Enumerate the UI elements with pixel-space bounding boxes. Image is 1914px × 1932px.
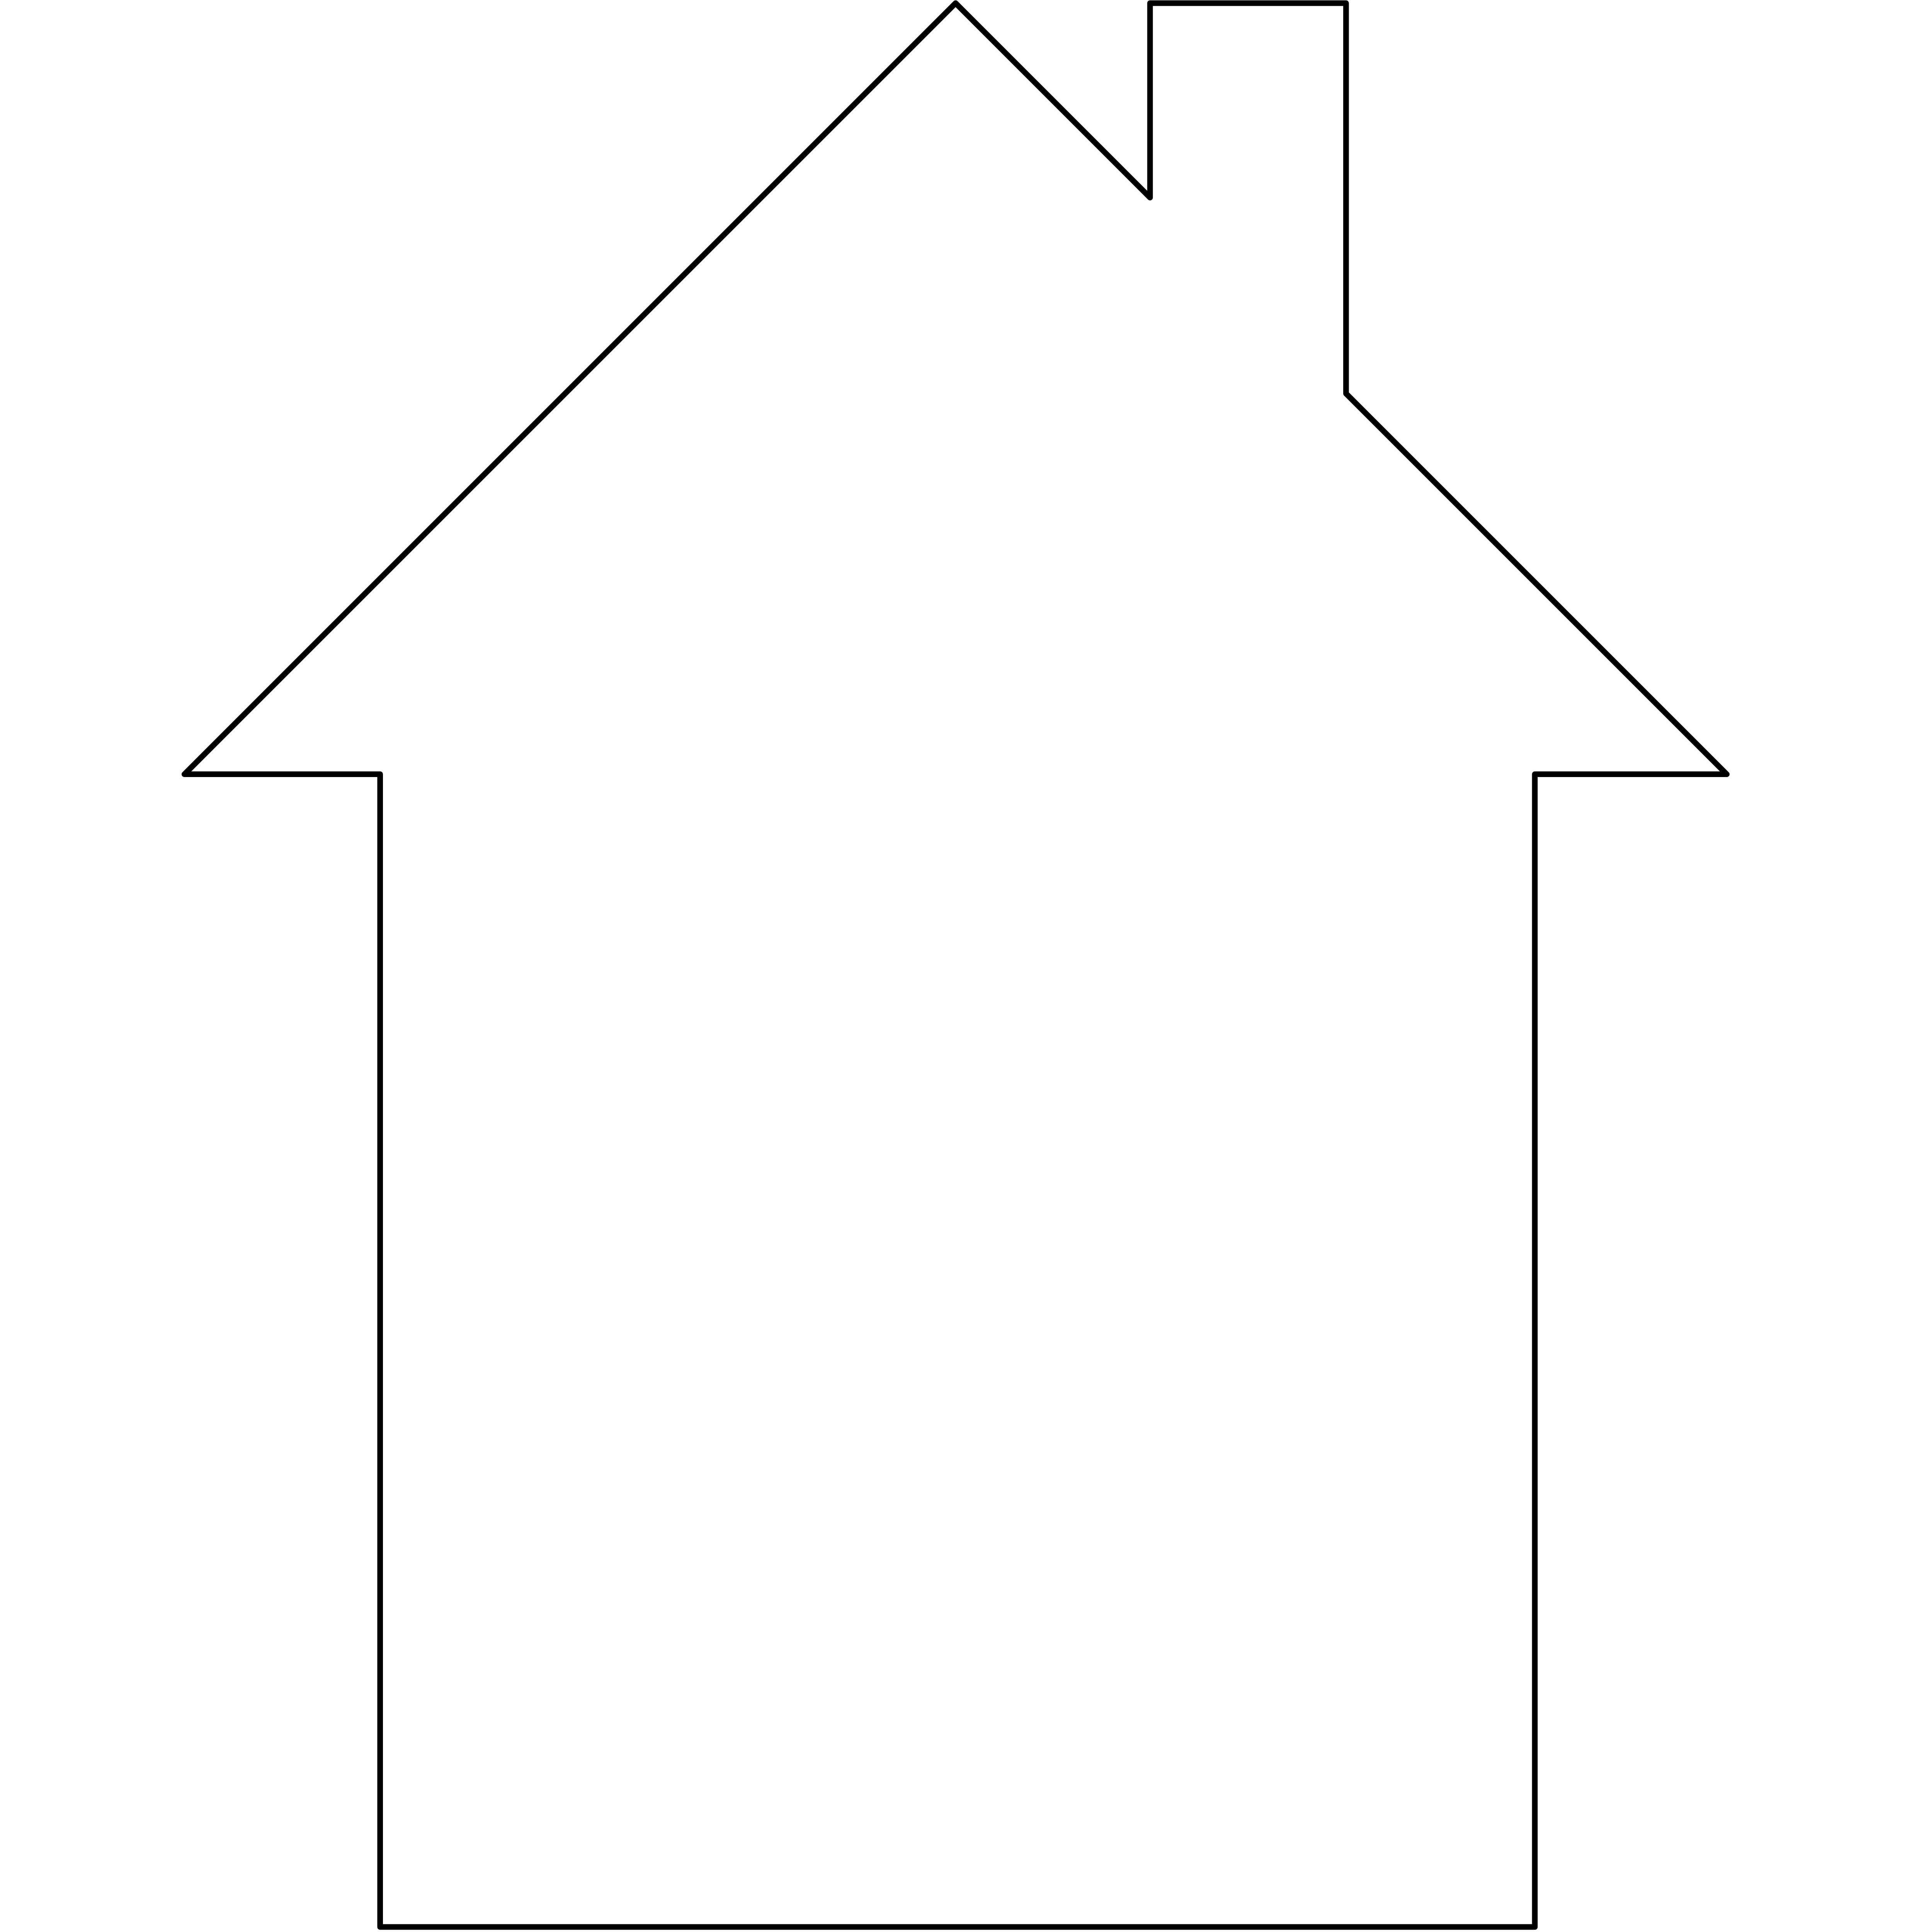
page-background	[0, 0, 1914, 1932]
house-outline-drawing	[0, 0, 1914, 1932]
house-outline-path	[184, 3, 1727, 1927]
